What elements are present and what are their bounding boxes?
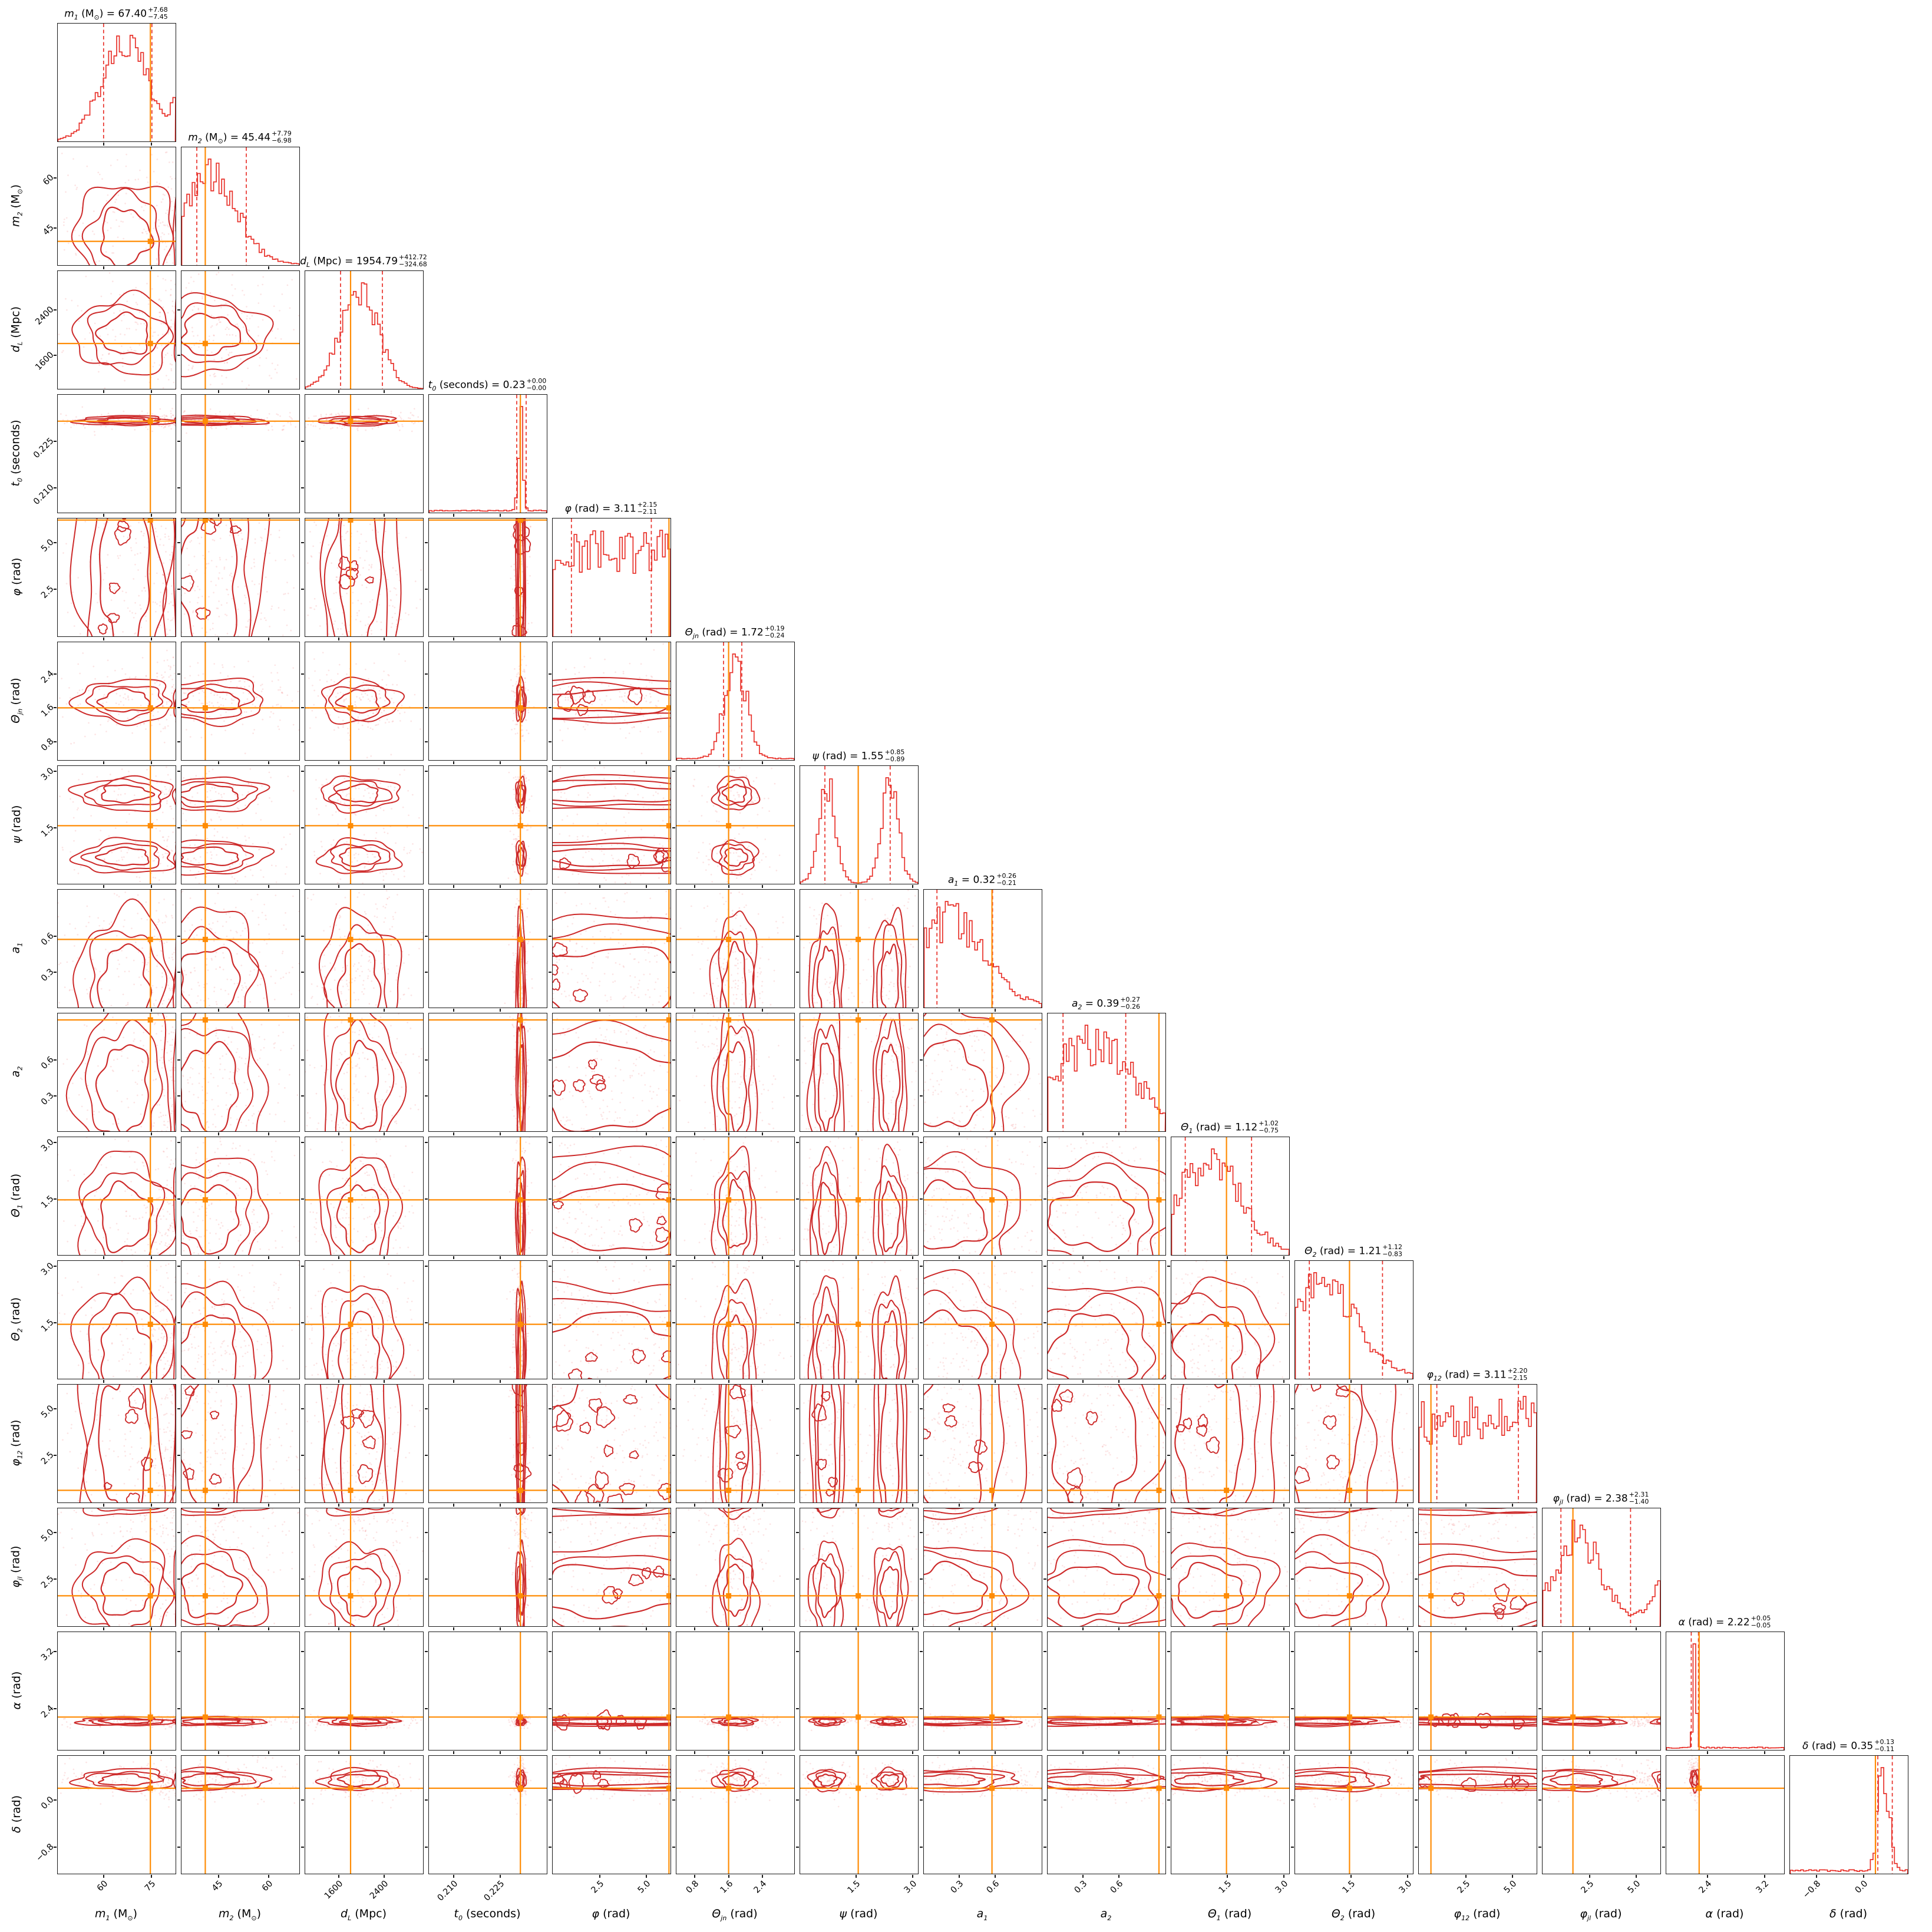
joint-panel-theta1-vs-theta_jn <box>676 1137 795 1256</box>
x-tick-mark <box>912 1256 913 1259</box>
label-text: −0.11 <box>1874 1746 1894 1753</box>
y-tick-mark <box>301 1266 304 1267</box>
joint-panel-alpha-vs-m1 <box>57 1632 176 1751</box>
y-tick-mark <box>549 1322 551 1323</box>
x-tick-mark <box>338 1009 339 1012</box>
y-tick-mark <box>425 707 428 708</box>
x-tick-mark <box>151 638 152 640</box>
x-tick-mark <box>856 885 857 888</box>
plot-canvas <box>676 1261 794 1379</box>
x-tick-mark <box>1350 1504 1352 1507</box>
x-tick-mark <box>1227 1504 1228 1507</box>
y-tick-mark <box>672 1322 675 1323</box>
plot-canvas <box>1171 1385 1289 1502</box>
x-tick-mark <box>384 1751 385 1754</box>
x-tick-mark <box>268 761 269 764</box>
label-text: −2.15 <box>1508 1375 1528 1382</box>
label-text: +7.79 <box>272 130 292 137</box>
joint-panel-psi-vs-m1 <box>57 765 176 884</box>
x-tick-mark <box>338 1256 339 1259</box>
x-tick-mark <box>384 390 385 393</box>
x-tick-mark <box>1512 1627 1513 1630</box>
x-tick-mark <box>959 1627 960 1630</box>
joint-panel-psi-vs-phi <box>552 765 671 884</box>
label-text: Θ <box>685 627 693 639</box>
label-text: (rad) <box>702 627 726 639</box>
y-axis-label-alpha: α (rad) <box>10 1672 23 1710</box>
label-text: t <box>9 482 22 486</box>
x-tick-mark <box>384 761 385 764</box>
x-tick-mark <box>1512 1504 1513 1507</box>
y-tick-mark <box>1167 1578 1170 1580</box>
x-tick-mark <box>995 1627 996 1630</box>
x-tick-mark <box>1283 1875 1284 1878</box>
plot-canvas <box>800 1508 918 1626</box>
label-text: α <box>1679 1617 1685 1629</box>
joint-panel-theta2-vs-theta1 <box>1171 1260 1290 1379</box>
plot-canvas <box>1048 1508 1165 1626</box>
x-tick-mark <box>856 1132 857 1135</box>
x-tick-mark <box>762 1009 763 1012</box>
plot-canvas <box>800 1261 918 1379</box>
y-tick-mark <box>425 771 428 772</box>
joint-panel-a2-vs-a1 <box>923 1013 1042 1132</box>
x-tick-mark <box>1082 1875 1084 1878</box>
label-text: (rad) <box>822 751 846 762</box>
label-text: (rad) <box>10 1672 23 1699</box>
x-tick-mark <box>500 1132 501 1135</box>
error-bounds: +0.26−0.21 <box>996 873 1016 886</box>
label-text: 1954.79 <box>356 256 398 267</box>
label-text: −0.89 <box>885 756 905 763</box>
x-tick-mark <box>762 1751 763 1754</box>
plot-canvas <box>1419 1385 1537 1502</box>
label-text: (rad) <box>730 1907 757 1920</box>
plot-canvas <box>429 1261 547 1379</box>
diagonal-title-alpha: α (rad) = 2.22+0.05−0.05 <box>1679 1616 1771 1629</box>
y-tick-mark <box>301 1847 304 1848</box>
x-tick-mark <box>268 885 269 888</box>
label-text: +0.19 <box>765 625 785 632</box>
y-tick-mark <box>1043 1578 1046 1580</box>
plot-canvas <box>924 890 1042 1008</box>
diagonal-histogram-dL <box>305 270 424 389</box>
x-tick-mark <box>1707 1875 1708 1878</box>
plot-canvas <box>800 1632 918 1750</box>
plot-canvas <box>58 642 176 760</box>
y-tick-mark <box>796 1408 799 1409</box>
x-tick-mark <box>453 761 454 764</box>
plot-canvas <box>553 1385 671 1502</box>
x-tick-mark <box>103 885 104 888</box>
label-text: Θ <box>9 1332 22 1341</box>
y-tick-mark <box>177 827 180 828</box>
label-text: −324.68 <box>399 261 427 268</box>
joint-panel-theta1-vs-phi <box>552 1137 671 1256</box>
x-tick-mark <box>268 1875 269 1878</box>
plot-canvas <box>429 1385 547 1502</box>
y-tick-mark <box>177 1455 180 1456</box>
x-tick-mark <box>995 1875 996 1878</box>
x-tick-mark <box>384 885 385 888</box>
x-tick-mark <box>694 1627 695 1630</box>
diagonal-histogram-m1 <box>57 23 176 142</box>
label-text: ψ <box>813 751 819 762</box>
y-tick-label-alpha: 2.4 <box>14 1703 56 1745</box>
plot-canvas <box>429 518 547 636</box>
label-text: −6.98 <box>272 137 292 144</box>
joint-panel-phi_jl-vs-t0 <box>428 1508 547 1627</box>
x-tick-mark <box>103 761 104 764</box>
diagonal-title-theta_jn: Θjn (rad) = 1.72+0.19−0.24 <box>685 626 785 640</box>
label-text: +2.15 <box>638 501 658 508</box>
label-text: (M <box>9 194 22 209</box>
y-axis-label-phi_jl: φjl (rad) <box>9 1545 24 1587</box>
plot-canvas <box>429 395 547 513</box>
label-subscript: 2 <box>1340 1914 1345 1922</box>
label-text: (seconds) <box>466 1907 521 1920</box>
x-tick-mark <box>959 1751 960 1754</box>
y-tick-mark <box>1538 1847 1541 1848</box>
x-tick-mark <box>995 1009 996 1012</box>
label-text: 3.11 <box>614 503 636 515</box>
plot-canvas <box>1419 1508 1537 1626</box>
x-tick-mark <box>268 1627 269 1630</box>
y-tick-mark <box>549 827 551 828</box>
x-tick-mark <box>1082 1751 1084 1754</box>
plot-canvas <box>181 1261 299 1379</box>
plot-canvas <box>181 1632 299 1750</box>
x-tick-mark <box>856 1875 857 1878</box>
y-tick-mark <box>920 1408 923 1409</box>
diagonal-title-t0: t0 (seconds) = 0.23+0.00−0.00 <box>428 378 546 392</box>
x-tick-mark <box>728 1256 729 1259</box>
x-tick-mark <box>728 885 729 888</box>
x-tick-mark <box>646 1256 647 1259</box>
label-text: (rad) <box>9 1297 22 1325</box>
x-tick-mark <box>694 761 695 764</box>
label-text: m <box>64 8 74 20</box>
x-tick-mark <box>694 1132 695 1135</box>
x-tick-mark <box>646 1751 647 1754</box>
x-tick-mark <box>151 1627 152 1630</box>
plot-canvas <box>181 518 299 636</box>
y-tick-mark <box>920 1532 923 1533</box>
y-tick-mark <box>301 1651 304 1652</box>
x-tick-mark <box>218 266 219 269</box>
label-text: (M <box>237 1907 252 1920</box>
x-tick-mark <box>599 638 600 640</box>
joint-panel-delta-vs-t0 <box>428 1755 547 1874</box>
label-text: (rad) <box>9 1420 22 1447</box>
plot-canvas <box>553 766 671 884</box>
y-tick-mark <box>796 1455 799 1456</box>
x-tick-mark <box>1589 1751 1590 1754</box>
label-text: (rad) <box>1445 1369 1469 1381</box>
plot-canvas <box>924 1632 1042 1750</box>
label-text: +0.27 <box>1120 996 1140 1003</box>
joint-panel-phi12-vs-dL <box>305 1384 424 1503</box>
x-axis-label-delta: δ (rad) <box>1829 1907 1867 1920</box>
label-text: (rad) <box>1812 1741 1836 1752</box>
x-axis-label-t0: t0 (seconds) <box>454 1907 521 1922</box>
label-subscript: 0 <box>16 478 24 482</box>
joint-panel-delta-vs-a1 <box>923 1755 1042 1874</box>
y-tick-mark <box>920 1142 923 1143</box>
joint-panel-theta2-vs-m1 <box>57 1260 176 1379</box>
y-tick-mark <box>672 1847 675 1848</box>
label-text: d <box>300 256 306 267</box>
x-tick-mark <box>338 638 339 640</box>
plot-canvas <box>1048 1261 1165 1379</box>
x-tick-mark <box>151 514 152 517</box>
y-tick-mark <box>301 542 304 543</box>
x-tick-mark <box>1350 1875 1352 1878</box>
x-tick-mark <box>453 1751 454 1754</box>
y-tick-mark <box>177 589 180 590</box>
plot-canvas <box>924 1013 1042 1131</box>
x-tick-mark <box>384 638 385 640</box>
y-tick-mark <box>549 1059 551 1061</box>
plot-canvas <box>1295 1632 1413 1750</box>
joint-panel-a2-vs-dL <box>305 1013 424 1132</box>
joint-panel-psi-vs-theta_jn <box>676 765 795 884</box>
y-tick-mark <box>1043 1198 1046 1200</box>
y-tick-mark <box>177 673 180 675</box>
x-tick-mark <box>1816 1875 1817 1878</box>
x-tick-mark <box>728 1380 729 1383</box>
joint-panel-alpha-vs-psi <box>800 1632 919 1751</box>
x-tick-mark <box>995 1132 996 1135</box>
x-tick-mark <box>453 1504 454 1507</box>
plot-canvas <box>181 1756 299 1874</box>
x-axis-label-phi: φ (rad) <box>592 1907 630 1920</box>
label-subscript: 1 <box>983 1914 988 1922</box>
y-tick-mark <box>796 1578 799 1580</box>
x-tick-mark <box>103 1380 104 1383</box>
plot-canvas <box>676 1508 794 1626</box>
error-bounds: +0.27−0.26 <box>1120 996 1140 1010</box>
plot-canvas <box>181 890 299 1008</box>
label-text: −0.26 <box>1120 1003 1140 1010</box>
label-text: (rad) <box>10 805 23 833</box>
plot-canvas <box>1171 1508 1289 1626</box>
joint-panel-a1-vs-m1 <box>57 889 176 1008</box>
plot-canvas <box>1048 1013 1165 1131</box>
joint-panel-a1-vs-m2 <box>181 889 300 1008</box>
y-tick-mark <box>425 1455 428 1456</box>
x-tick-mark <box>646 1380 647 1383</box>
x-tick-mark <box>694 1751 695 1754</box>
x-tick-mark <box>151 143 152 146</box>
label-text: (rad) <box>1196 1122 1220 1134</box>
joint-panel-delta-vs-alpha <box>1666 1755 1785 1874</box>
x-tick-mark <box>1227 1256 1228 1259</box>
error-bounds: +2.15−2.11 <box>638 501 658 515</box>
label-text: 0.35 <box>1851 1741 1873 1752</box>
y-tick-mark <box>549 1198 551 1200</box>
label-text: +1.12 <box>1382 1244 1402 1251</box>
y-tick-label-a1: 0.3 <box>14 967 56 1009</box>
label-subscript: 1 <box>16 1204 24 1208</box>
solar-mass-symbol: ⊙ <box>251 1914 256 1922</box>
y-tick-mark <box>796 1322 799 1323</box>
y-tick-mark <box>425 936 428 937</box>
plot-canvas <box>1543 1508 1660 1626</box>
y-tick-mark <box>549 972 551 973</box>
x-axis-label-a2: a2 <box>1101 1907 1112 1922</box>
joint-panel-psi-vs-m2 <box>181 765 300 884</box>
joint-panel-theta_jn-vs-t0 <box>428 642 547 761</box>
y-tick-mark <box>425 673 428 675</box>
plot-canvas <box>58 1632 176 1750</box>
label-text: 1.12 <box>1235 1122 1257 1134</box>
y-tick-mark <box>177 441 180 442</box>
y-tick-mark <box>549 1651 551 1652</box>
x-tick-mark <box>338 1751 339 1754</box>
joint-panel-a1-vs-psi <box>800 889 919 1008</box>
x-tick-mark <box>1227 1875 1228 1878</box>
label-text: −0.05 <box>1751 1622 1771 1629</box>
label-text: (rad) <box>10 1795 23 1822</box>
x-tick-mark <box>1407 1751 1408 1754</box>
joint-panel-theta_jn-vs-phi <box>552 642 671 761</box>
x-tick-mark <box>646 1009 647 1012</box>
x-tick-mark <box>646 1875 647 1878</box>
x-tick-mark <box>218 1009 219 1012</box>
x-tick-mark <box>500 1009 501 1012</box>
label-text: d <box>9 345 22 352</box>
plot-canvas <box>305 1385 423 1502</box>
y-tick-mark <box>1167 1266 1170 1267</box>
y-tick-mark <box>549 1578 551 1580</box>
label-subscript: 12 <box>1434 1375 1442 1382</box>
label-text: m <box>95 1907 106 1920</box>
y-tick-mark <box>1291 1455 1294 1456</box>
y-tick-mark <box>301 1708 304 1709</box>
label-text: (M <box>114 1907 128 1920</box>
joint-panel-alpha-vs-m2 <box>181 1632 300 1751</box>
joint-panel-theta_jn-vs-m1 <box>57 642 176 761</box>
plot-canvas <box>181 147 299 265</box>
x-tick-mark <box>728 761 729 764</box>
joint-panel-phi12-vs-m2 <box>181 1384 300 1503</box>
x-tick-mark <box>912 1627 913 1630</box>
x-tick-label-delta: −0.8 <box>1781 1879 1823 1921</box>
joint-panel-psi-vs-t0 <box>428 765 547 884</box>
y-tick-mark <box>1415 1708 1418 1709</box>
y-tick-mark <box>549 771 551 772</box>
x-tick-mark <box>1118 1132 1119 1135</box>
x-tick-mark <box>453 1380 454 1383</box>
diagonal-histogram-a1 <box>923 889 1042 1008</box>
diagonal-histogram-a2 <box>1047 1013 1166 1132</box>
label-text: (Mpc) <box>355 1907 387 1920</box>
x-tick-mark <box>762 1380 763 1383</box>
y-tick-mark <box>1538 1799 1541 1801</box>
y-tick-mark <box>1167 1847 1170 1848</box>
y-tick-mark <box>672 771 675 772</box>
x-tick-mark <box>103 390 104 393</box>
x-tick-mark <box>1465 1504 1467 1507</box>
x-tick-mark <box>338 1504 339 1507</box>
joint-panel-phi_jl-vs-a2 <box>1047 1508 1166 1627</box>
x-tick-mark <box>762 1875 763 1878</box>
y-tick-mark <box>920 1266 923 1267</box>
plot-canvas <box>181 1137 299 1255</box>
error-bounds: +7.68−7.45 <box>148 6 168 20</box>
joint-panel-phi_jl-vs-phi12 <box>1418 1508 1537 1627</box>
diagonal-title-psi: ψ (rad) = 1.55+0.85−0.89 <box>813 749 905 763</box>
y-tick-mark <box>1415 1847 1418 1848</box>
label-text: (rad) <box>9 1174 22 1201</box>
x-tick-mark <box>268 1256 269 1259</box>
joint-panel-phi-vs-m1 <box>57 518 176 637</box>
y-tick-mark <box>1415 1578 1418 1580</box>
x-tick-mark <box>218 514 219 517</box>
x-tick-mark <box>151 1504 152 1507</box>
y-tick-mark <box>672 1095 675 1097</box>
label-text: +0.85 <box>885 749 905 756</box>
y-tick-mark <box>1167 1799 1170 1801</box>
error-bounds: +1.02−0.75 <box>1259 1120 1279 1134</box>
plot-canvas <box>553 1508 671 1626</box>
plot-canvas <box>58 890 176 1008</box>
label-text: (rad) <box>1566 1493 1590 1505</box>
y-tick-mark <box>425 972 428 973</box>
y-tick-mark <box>672 1408 675 1409</box>
plot-canvas <box>676 890 794 1008</box>
joint-panel-theta2-vs-theta_jn <box>676 1260 795 1379</box>
x-axis-label-psi: ψ (rad) <box>840 1907 878 1920</box>
label-text: (M <box>205 132 217 144</box>
plot-canvas <box>181 1508 299 1626</box>
y-tick-mark <box>796 1708 799 1709</box>
plot-canvas <box>58 1013 176 1131</box>
x-tick-mark <box>995 1380 996 1383</box>
plot-canvas <box>58 24 176 141</box>
x-tick-mark <box>995 1256 996 1259</box>
joint-panel-delta-vs-theta1 <box>1171 1755 1290 1874</box>
joint-panel-dL-vs-m2 <box>181 270 300 389</box>
plot-canvas <box>429 766 547 884</box>
x-tick-mark <box>103 1256 104 1259</box>
joint-panel-phi_jl-vs-theta1 <box>1171 1508 1290 1627</box>
x-tick-mark <box>453 1875 454 1878</box>
joint-panel-theta1-vs-a1 <box>923 1137 1042 1256</box>
label-text: (rad) <box>9 1545 22 1573</box>
joint-panel-phi12-vs-theta2 <box>1294 1384 1414 1503</box>
y-axis-label-theta1: Θ1 (rad) <box>9 1174 24 1217</box>
diagonal-histogram-psi <box>800 765 919 884</box>
y-tick-mark <box>549 1847 551 1848</box>
label-text: −0.21 <box>996 880 1016 887</box>
y-tick-mark <box>672 1532 675 1533</box>
x-tick-mark <box>1636 1751 1637 1754</box>
plot-canvas <box>553 890 671 1008</box>
x-tick-mark <box>912 885 913 888</box>
y-tick-label-dL: 1600 <box>14 350 56 392</box>
label-text: (seconds) <box>440 379 488 391</box>
joint-panel-alpha-vs-dL <box>305 1632 424 1751</box>
y-tick-mark <box>301 1095 304 1097</box>
y-tick-mark <box>425 1142 428 1143</box>
y-tick-mark <box>301 1532 304 1533</box>
x-axis-label-theta2: Θ2 (rad) <box>1332 1907 1375 1922</box>
diagonal-histogram-phi <box>552 518 671 637</box>
joint-panel-delta-vs-theta_jn <box>676 1755 795 1874</box>
plot-canvas <box>1543 1632 1660 1750</box>
